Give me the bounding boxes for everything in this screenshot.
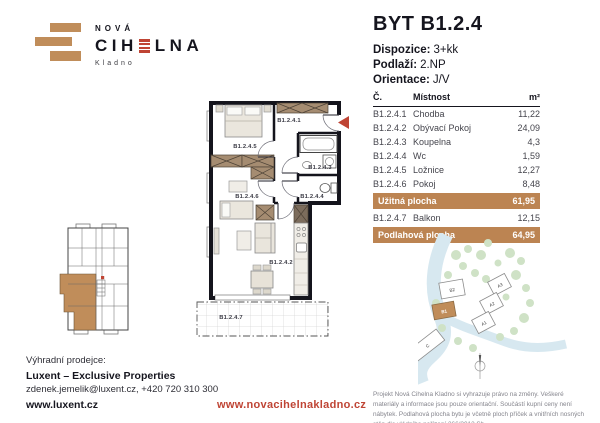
building-keyplan <box>58 222 148 337</box>
room-label-balkon: B1.2.4.7 <box>219 315 243 321</box>
flyer-page: NOVÁ CIH LNA Kladno BYT B1.2.4 Dispozice… <box>0 0 600 423</box>
logo-text: NOVÁ CIH LNA Kladno <box>95 24 203 67</box>
site-plan: B2 B1 A3 A2 A1 C <box>418 233 593 385</box>
usable-area-row: Užitná plocha61,95 <box>373 192 540 210</box>
logo-cihelna: CIH LNA <box>95 36 203 56</box>
building-b2: B2 <box>439 279 465 299</box>
double-bed-icon <box>216 105 271 137</box>
room-area-table: Č. Místnost m² B1.2.4.1Chodba11,22 B1.2.… <box>373 92 540 245</box>
unit-header: BYT B1.2.4 Dispozice:3+kk Podlaží:2.NP O… <box>373 13 553 87</box>
seller-contact[interactable]: zdenek.jemelik@luxent.cz, +420 720 310 3… <box>26 383 218 398</box>
dining-table-icon <box>251 265 273 294</box>
logo: NOVÁ CIH LNA Kladno <box>27 14 217 69</box>
bathtub-icon <box>300 136 337 169</box>
room-label-loznice: B1.2.4.5 <box>233 144 257 150</box>
table-row: B1.2.4.1Chodba11,22 <box>373 107 540 122</box>
spec-podlazi: Podlaží:2.NP <box>373 58 553 72</box>
room-label-koupelna: B1.2.4.3 <box>308 165 332 171</box>
brick-logo-icon <box>27 14 83 64</box>
spec-label: Podlaží: <box>373 59 417 71</box>
compass-icon <box>475 353 485 379</box>
spec-label: Orientace: <box>373 74 430 86</box>
logo-word-end: LNA <box>155 36 203 56</box>
table-row: B1.2.4.3Koupelna4,3 <box>373 135 540 149</box>
disclaimer-text: Projekt Nová Cihelna Kladno si vyhrazuje… <box>373 390 587 423</box>
building-a3: A3 <box>488 273 512 295</box>
spec-dispozice: Dispozice:3+kk <box>373 43 553 57</box>
balcony-area <box>197 302 328 336</box>
spec-value: 2.NP <box>420 59 446 71</box>
spec-label: Dispozice: <box>373 44 431 56</box>
tv-board-icon <box>214 228 219 254</box>
logo-word-start: CIH <box>95 36 138 56</box>
page-title: BYT B1.2.4 <box>373 13 553 36</box>
brick-shape <box>35 37 72 46</box>
logo-city: Kladno <box>95 60 203 67</box>
seller-block: Výhradní prodejce: Luxent – Exclusive Pr… <box>26 354 218 412</box>
seller-website-link[interactable]: www.luxent.cz <box>26 398 218 413</box>
coffee-table-icon <box>237 231 251 250</box>
seller-name: Luxent – Exclusive Properties <box>26 369 218 384</box>
room-label-chodba: B1.2.4.1 <box>277 118 301 124</box>
col-header-room: Místnost <box>413 92 494 107</box>
keyplan-unit-marker <box>101 276 104 279</box>
brick-shape <box>50 23 81 32</box>
spec-value: 3+kk <box>434 44 459 56</box>
table-row: B1.2.4.6Pokoj8,48 <box>373 177 540 192</box>
kitchen-counter-icon <box>294 223 308 295</box>
single-bed-icon <box>220 181 253 219</box>
sofa-icon <box>214 223 275 254</box>
apartment-floorplan: B1.2.4.1 B1.2.4.2 B1.2.4.3 B1.2.4.4 B1.2… <box>195 95 365 340</box>
table-header-row: Č. Místnost m² <box>373 92 540 107</box>
keyplan-highlighted-unit <box>60 274 96 330</box>
room-label-wc: B1.2.4.4 <box>300 194 324 200</box>
project-website-link[interactable]: www.novacihelnakladno.cz <box>217 399 366 411</box>
logo-e-bars-icon <box>139 39 150 52</box>
brick-shape <box>50 51 81 61</box>
table-row: B1.2.4.7Balkon12,15 <box>373 210 540 226</box>
building-a2: A2 <box>480 292 504 314</box>
toilet-icon <box>320 183 337 193</box>
room-label-pokoj: B1.2.4.6 <box>235 194 259 200</box>
logo-nova: NOVÁ <box>95 24 203 33</box>
table-row: B1.2.4.5Ložnice12,27 <box>373 163 540 177</box>
col-header-area: m² <box>494 92 540 107</box>
spec-orientace: Orientace:J/V <box>373 73 553 87</box>
spec-value: J/V <box>433 74 450 86</box>
entrance-arrow-icon <box>338 116 349 129</box>
room-label-obyvaci: B1.2.4.2 <box>269 260 293 266</box>
table-row: B1.2.4.4Wc1,59 <box>373 149 540 163</box>
col-header-number: Č. <box>373 92 413 107</box>
building-b1-highlighted: B1 <box>432 301 456 320</box>
table-row: B1.2.4.2Obývací Pokoj24,09 <box>373 121 540 135</box>
seller-label: Výhradní prodejce: <box>26 354 218 369</box>
